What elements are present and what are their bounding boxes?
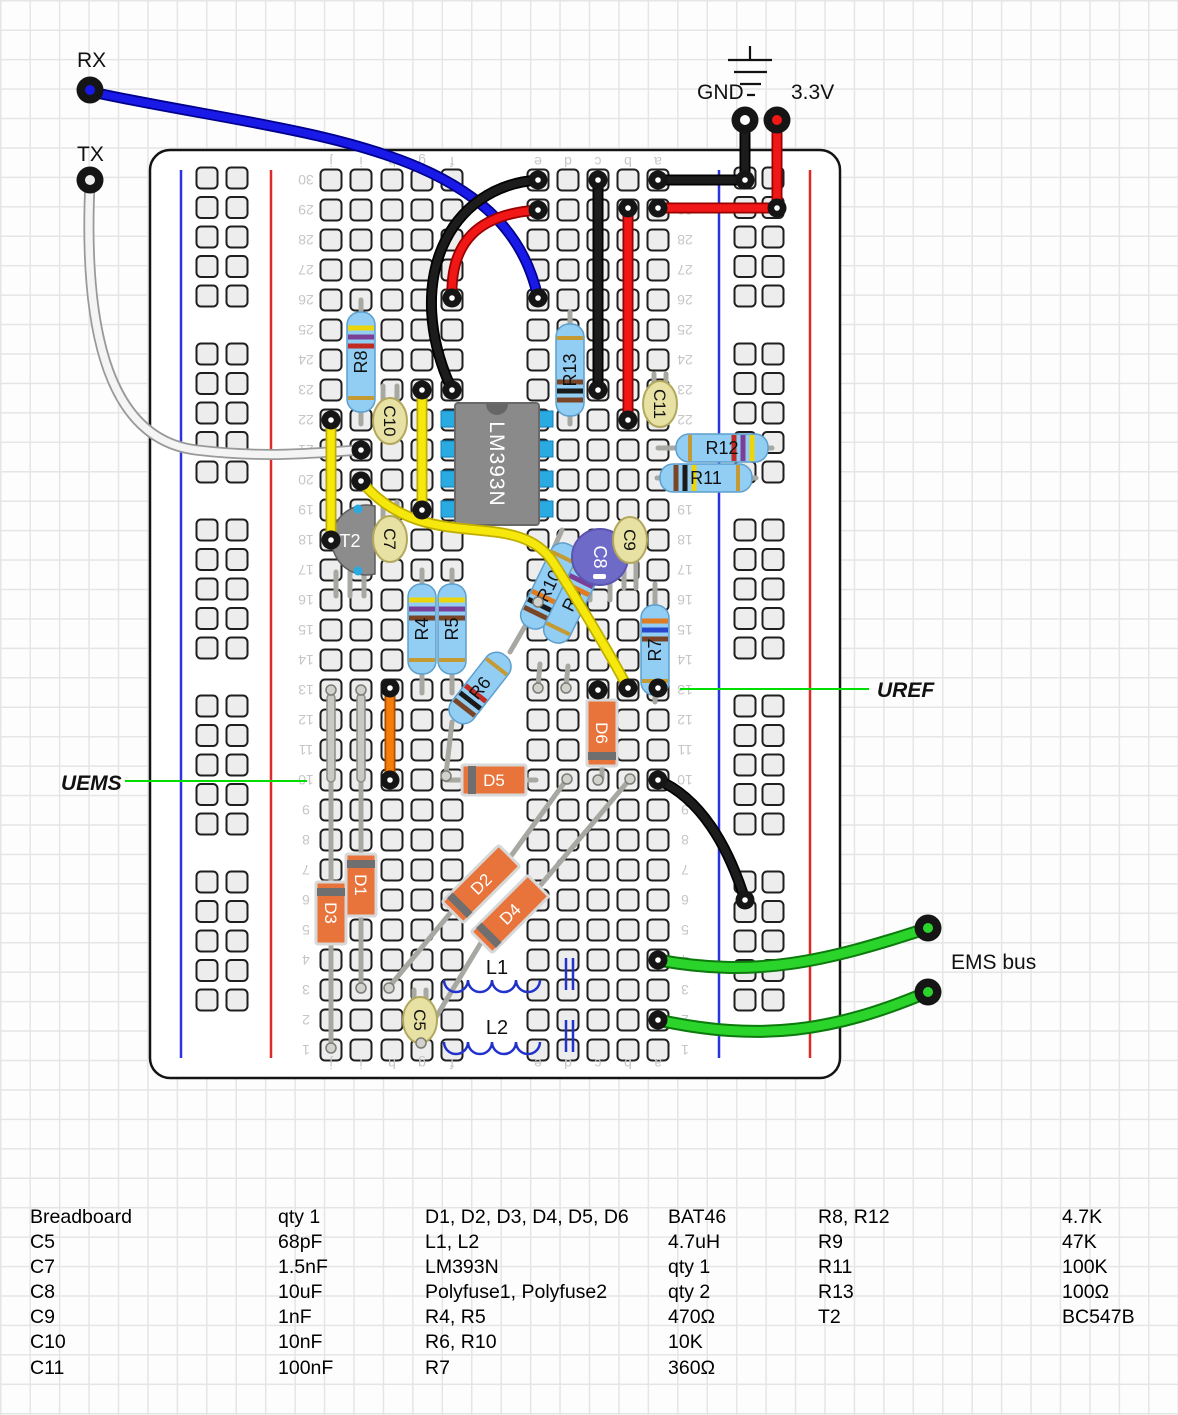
rail-hole (227, 755, 248, 776)
rail-hole (735, 725, 756, 746)
d5-cathode-band (468, 766, 476, 794)
rail-hole (763, 373, 784, 394)
hole (321, 230, 342, 251)
hole (648, 260, 669, 281)
row-number: 20 (298, 472, 314, 488)
column-letter: h (388, 1056, 396, 1072)
rail-hole (227, 901, 248, 922)
rail-hole (763, 990, 784, 1011)
column-letter: f (450, 154, 454, 170)
rx-label: RX (77, 49, 106, 72)
hole (412, 860, 433, 881)
hole (382, 230, 403, 251)
wire-bendpoint-center (535, 295, 541, 301)
hole (321, 650, 342, 671)
l1-label: L1 (486, 957, 508, 979)
rail-hole (735, 520, 756, 541)
tolerance-band (348, 396, 374, 400)
hole (351, 620, 372, 641)
wire-bendpoint-center (449, 295, 455, 301)
column-letter: i (359, 154, 362, 170)
row-number: 5 (302, 922, 310, 938)
rail-hole (763, 784, 784, 805)
hole (618, 950, 639, 971)
hole (618, 980, 639, 1001)
hole (588, 830, 609, 851)
tolerance-band (736, 465, 740, 491)
lead-pin (533, 597, 543, 607)
rail-hole (197, 403, 218, 424)
column-letter: g (418, 1056, 426, 1072)
color-band (557, 389, 583, 394)
polyfuse-2 (357, 694, 365, 782)
hole (412, 890, 433, 911)
hole (528, 740, 549, 761)
row-number: 28 (298, 232, 314, 248)
row-number: 23 (677, 382, 693, 398)
row-number: 15 (298, 622, 314, 638)
rail-hole (227, 784, 248, 805)
parts-table-cell: 100Ω (1062, 1280, 1135, 1305)
hole (558, 260, 579, 281)
wire-bendpoint-center (774, 205, 780, 211)
hole (558, 980, 579, 1001)
parts-table-cell: C7 (30, 1255, 132, 1280)
color-band (557, 398, 583, 403)
hole (648, 740, 669, 761)
column-letter: d (564, 1056, 572, 1072)
d5-label: D5 (483, 771, 505, 790)
capacitor-c11: C11 (643, 381, 677, 427)
row-number: 11 (678, 742, 693, 758)
hole (588, 410, 609, 431)
rail-hole (763, 755, 784, 776)
color-band (750, 435, 755, 461)
t2-label: T2 (339, 531, 360, 551)
r11-label: R11 (690, 468, 722, 488)
hole (648, 320, 669, 341)
row-number: 23 (298, 382, 314, 398)
rail-hole (197, 990, 218, 1011)
row-number: 7 (302, 862, 310, 878)
hole (412, 200, 433, 221)
uref-label: UREF (877, 679, 935, 702)
hole (442, 830, 463, 851)
parts-table-cell: qty 2 (668, 1280, 726, 1305)
rail-hole (735, 696, 756, 717)
c8-polarity-mark (593, 574, 606, 579)
lead-pin (326, 685, 336, 695)
wire-bendpoint-center (655, 177, 661, 183)
wire-bendpoint-center (742, 177, 748, 183)
hole (321, 350, 342, 371)
rail-hole (227, 256, 248, 277)
rail-hole (227, 373, 248, 394)
color-band (642, 628, 668, 633)
c8-label: C8 (590, 545, 610, 568)
r8-label: R8 (351, 350, 371, 373)
ic-lm393n: LM393N (441, 403, 553, 525)
rail-hole (227, 197, 248, 218)
lead-pin (356, 685, 366, 695)
hole (321, 620, 342, 641)
row-number: 27 (677, 262, 693, 278)
row-number: 12 (677, 712, 693, 728)
wire-bendpoint-center (625, 205, 631, 211)
hole (382, 650, 403, 671)
parts-table-cell: R4, R5 (425, 1305, 629, 1330)
wire-bendpoint-center (742, 897, 748, 903)
rail-hole (763, 901, 784, 922)
hole (588, 980, 609, 1001)
l2-label: L2 (486, 1017, 508, 1039)
parts-table-cell (1062, 1356, 1135, 1381)
column-letter: f (450, 1056, 454, 1072)
rail-hole (763, 872, 784, 893)
hole (588, 1010, 609, 1031)
rail-hole (763, 403, 784, 424)
hole (351, 230, 372, 251)
hole (528, 320, 549, 341)
wire-bendpoint-center (328, 417, 334, 423)
hole (618, 590, 639, 611)
wire-bendpoint-center (387, 685, 393, 691)
row-number: 10 (677, 772, 693, 788)
hole (382, 290, 403, 311)
column-letter: e (534, 1056, 542, 1072)
row-number: 24 (677, 352, 693, 368)
capacitor-c7: C7 (373, 516, 407, 562)
rail-hole (735, 227, 756, 248)
t2-pin-dot (354, 505, 363, 514)
color-band (439, 607, 465, 612)
row-number: 3 (302, 982, 310, 998)
rail-hole (197, 608, 218, 629)
tx-pin-center (85, 175, 95, 185)
rail-hole (197, 931, 218, 952)
column-letter: e (534, 154, 542, 170)
capacitor-c10: C10 (373, 398, 407, 444)
ic-label: LM393N (485, 421, 508, 506)
parts-table-cell: 4.7K (1062, 1205, 1135, 1230)
rail-hole (197, 784, 218, 805)
rail-hole (197, 462, 218, 483)
parts-table-cell (818, 1356, 890, 1381)
hole (382, 320, 403, 341)
wire-bendpoint-center (419, 507, 425, 513)
tolerance-band (439, 658, 465, 662)
hole (412, 230, 433, 251)
hole (528, 950, 549, 971)
hole (648, 980, 669, 1001)
hole (382, 200, 403, 221)
hole (558, 290, 579, 311)
hole (382, 860, 403, 881)
rail-hole (227, 286, 248, 307)
tx-label: TX (77, 143, 104, 166)
ems-bus-label: EMS bus (951, 951, 1036, 974)
hole (588, 440, 609, 461)
parts-table-cell: D1, D2, D3, D4, D5, D6 (425, 1205, 629, 1230)
rail-hole (227, 608, 248, 629)
hole (382, 830, 403, 851)
wire-bendpoint-center (595, 387, 601, 393)
hole (618, 710, 639, 731)
wire-bendpoint-center (328, 537, 334, 543)
wire-bendpoint-center (449, 387, 455, 393)
color-band (348, 344, 374, 349)
v33-label: 3.3V (791, 81, 834, 104)
column-letter: j (329, 154, 333, 170)
row-number: 16 (298, 592, 314, 608)
rail-hole (735, 256, 756, 277)
hole (588, 920, 609, 941)
resistor-r4: R4 (408, 584, 436, 674)
rail-hole (197, 696, 218, 717)
rail-hole (735, 990, 756, 1011)
rail-hole (227, 579, 248, 600)
hole (648, 800, 669, 821)
polyfuse-1 (327, 694, 335, 782)
hole (588, 860, 609, 881)
rail-hole (227, 462, 248, 483)
rail-hole (735, 931, 756, 952)
hole (648, 530, 669, 551)
hole (382, 1010, 403, 1031)
rail-hole (763, 814, 784, 835)
row-number: 13 (298, 682, 314, 698)
d3-label: D3 (321, 902, 340, 924)
resistor-r11: R11 (660, 464, 752, 492)
row-number: 14 (677, 652, 693, 668)
hole (558, 1010, 579, 1031)
row-number: 14 (298, 652, 314, 668)
rx-pin-center (85, 85, 95, 95)
lead-pin (384, 983, 394, 993)
parts-table-cell: 1.5nF (278, 1255, 333, 1280)
color-band (674, 465, 679, 491)
hole (412, 830, 433, 851)
hole (412, 350, 433, 371)
rail-hole (735, 286, 756, 307)
hole (528, 980, 549, 1001)
capacitor-c5: C5 (403, 997, 437, 1043)
lead-pin (441, 771, 451, 781)
column-letter: c (595, 1056, 602, 1072)
r7-label: R7 (645, 638, 665, 661)
hole (442, 320, 463, 341)
parts-table-column: BAT464.7uHqty 1qty 2470Ω10K360Ω (668, 1205, 726, 1381)
hole (648, 830, 669, 851)
color-band (683, 465, 688, 491)
hole (382, 920, 403, 941)
parts-table-cell: R7 (425, 1356, 629, 1381)
hole (321, 380, 342, 401)
parts-table-cell: C10 (30, 1330, 132, 1355)
d1-cathode-band (347, 860, 375, 868)
ems-bus-pin-center (923, 987, 933, 997)
diode-d3: D3 (316, 882, 346, 944)
t2-pin-dot (354, 567, 363, 576)
hole (648, 710, 669, 731)
rail-hole (763, 462, 784, 483)
hole (588, 470, 609, 491)
lead-pin (356, 983, 366, 993)
hole (618, 860, 639, 881)
row-number: 24 (298, 352, 314, 368)
rail-hole (197, 901, 218, 922)
breadboard-svg: 1122334455667788991010111112121313141415… (0, 0, 1178, 1415)
row-number: 22 (677, 412, 693, 428)
hole (351, 200, 372, 221)
parts-table-cell: 10nF (278, 1330, 333, 1355)
rail-hole (763, 549, 784, 570)
color-band (348, 326, 374, 331)
hole (618, 740, 639, 761)
rail-hole (197, 872, 218, 893)
c5-label: C5 (410, 1009, 429, 1031)
hole (412, 740, 433, 761)
rail-hole (763, 520, 784, 541)
rail-hole (227, 227, 248, 248)
hole (558, 500, 579, 521)
rail-hole (763, 344, 784, 365)
lead-pin (326, 1043, 336, 1053)
hole (618, 620, 639, 641)
rail-hole (227, 725, 248, 746)
row-number: 6 (681, 892, 689, 908)
row-number: 15 (677, 622, 693, 638)
rail-hole (735, 344, 756, 365)
rail-hole (735, 403, 756, 424)
rail-hole (197, 579, 218, 600)
hole (648, 500, 669, 521)
rail-hole (763, 286, 784, 307)
wire-bendpoint-center (387, 777, 393, 783)
row-number: 4 (302, 952, 310, 968)
rail-hole (197, 638, 218, 659)
parts-table-column: BreadboardC5C7C8C9C10C11 (30, 1205, 132, 1381)
wire-bendpoint-center (655, 205, 661, 211)
hole (558, 440, 579, 461)
hole (442, 1010, 463, 1031)
rail-hole (197, 286, 218, 307)
parts-table-cell: R11 (818, 1255, 890, 1280)
tolerance-band (409, 658, 435, 662)
diode-d6: D6 (587, 700, 617, 766)
hole (351, 170, 372, 191)
row-number: 9 (302, 802, 310, 818)
wire-bendpoint-center (595, 687, 601, 693)
d1-label: D1 (351, 874, 370, 896)
hole (382, 800, 403, 821)
rail-hole (227, 814, 248, 835)
d3-cathode-band (317, 888, 345, 896)
wire-bendpoint-center (358, 447, 364, 453)
parts-table-cell: 470Ω (668, 1305, 726, 1330)
row-number: 19 (677, 502, 693, 518)
wire-bendpoint-center (655, 957, 661, 963)
rail-hole (227, 931, 248, 952)
parts-table-cell: BC547B (1062, 1305, 1135, 1330)
column-letter: a (654, 154, 662, 170)
rail-hole (197, 168, 218, 189)
rail-hole (227, 960, 248, 981)
hole (618, 440, 639, 461)
lead-pin (561, 683, 571, 693)
row-number: 27 (298, 262, 314, 278)
hole (382, 470, 403, 491)
parts-table-cell: LM393N (425, 1255, 629, 1280)
row-number: 11 (299, 742, 314, 758)
rail-hole (227, 990, 248, 1011)
hole (321, 170, 342, 191)
rail-hole (227, 168, 248, 189)
ems-bus-pin-center (923, 923, 933, 933)
lead-pin (533, 683, 543, 693)
hole (588, 500, 609, 521)
hole (442, 800, 463, 821)
hole (588, 890, 609, 911)
parts-table-cell: Breadboard (30, 1205, 132, 1230)
row-number: 26 (677, 292, 693, 308)
resistor-r12: R12 (676, 434, 768, 462)
hole (528, 350, 549, 371)
hole (648, 290, 669, 311)
hole (648, 860, 669, 881)
hole (528, 920, 549, 941)
hole (382, 590, 403, 611)
hole (321, 260, 342, 281)
rail-hole (197, 725, 218, 746)
lead-pin (416, 1038, 426, 1048)
parts-table-cell: 47K (1062, 1230, 1135, 1255)
row-number: 18 (677, 532, 693, 548)
rail-hole (197, 227, 218, 248)
capacitor-c9: C9 (613, 517, 647, 563)
lead-pin (625, 774, 635, 784)
wire-bendpoint-center (655, 1017, 661, 1023)
row-number: 3 (681, 982, 689, 998)
rail-hole (197, 755, 218, 776)
row-number: 5 (681, 922, 689, 938)
parts-table-cell: qty 1 (668, 1255, 726, 1280)
hole (412, 800, 433, 821)
column-letter: b (624, 1056, 632, 1072)
row-number: 2 (302, 1012, 310, 1028)
hole (648, 890, 669, 911)
hole (412, 770, 433, 791)
rail-hole (227, 696, 248, 717)
rail-hole (197, 549, 218, 570)
rail-hole (227, 549, 248, 570)
hole (558, 740, 579, 761)
hole (558, 950, 579, 971)
rail-hole (763, 227, 784, 248)
hole (558, 470, 579, 491)
rail-hole (197, 344, 218, 365)
color-band (642, 619, 668, 624)
rail-hole (735, 638, 756, 659)
rail-hole (197, 197, 218, 218)
hole (618, 170, 639, 191)
color-band (439, 598, 465, 603)
hole (648, 920, 669, 941)
column-letter: b (624, 154, 632, 170)
rail-hole (735, 784, 756, 805)
parts-table-cell: T2 (818, 1305, 890, 1330)
wire-bendpoint-center (358, 478, 364, 484)
